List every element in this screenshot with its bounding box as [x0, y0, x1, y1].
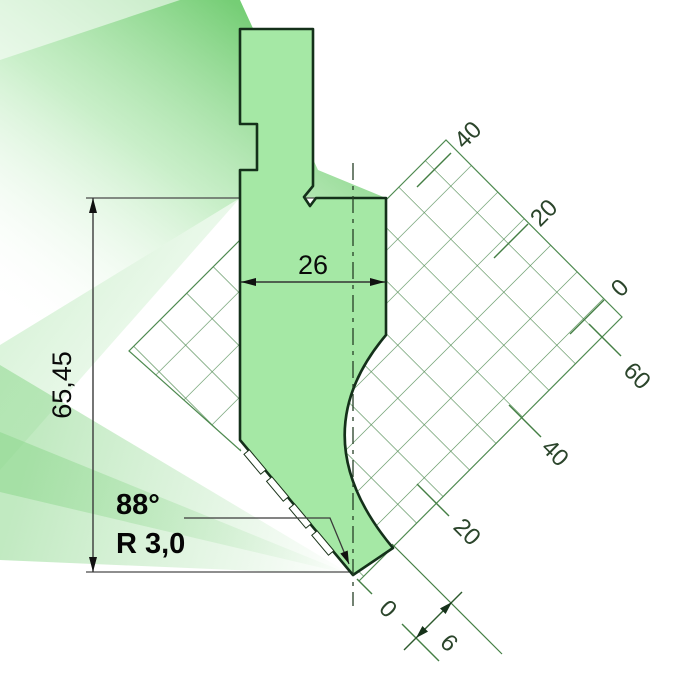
punch-drawing-svg: 40 20 0 60 40 20 0 6: [0, 0, 700, 700]
angle-label: 88°: [116, 489, 160, 521]
radius-label: R 3,0: [116, 528, 185, 560]
technical-drawing-canvas: 40 20 0 60 40 20 0 6: [0, 0, 700, 700]
width-dimension-label: 26: [298, 250, 328, 280]
height-dimension-label: 65,45: [47, 351, 77, 419]
